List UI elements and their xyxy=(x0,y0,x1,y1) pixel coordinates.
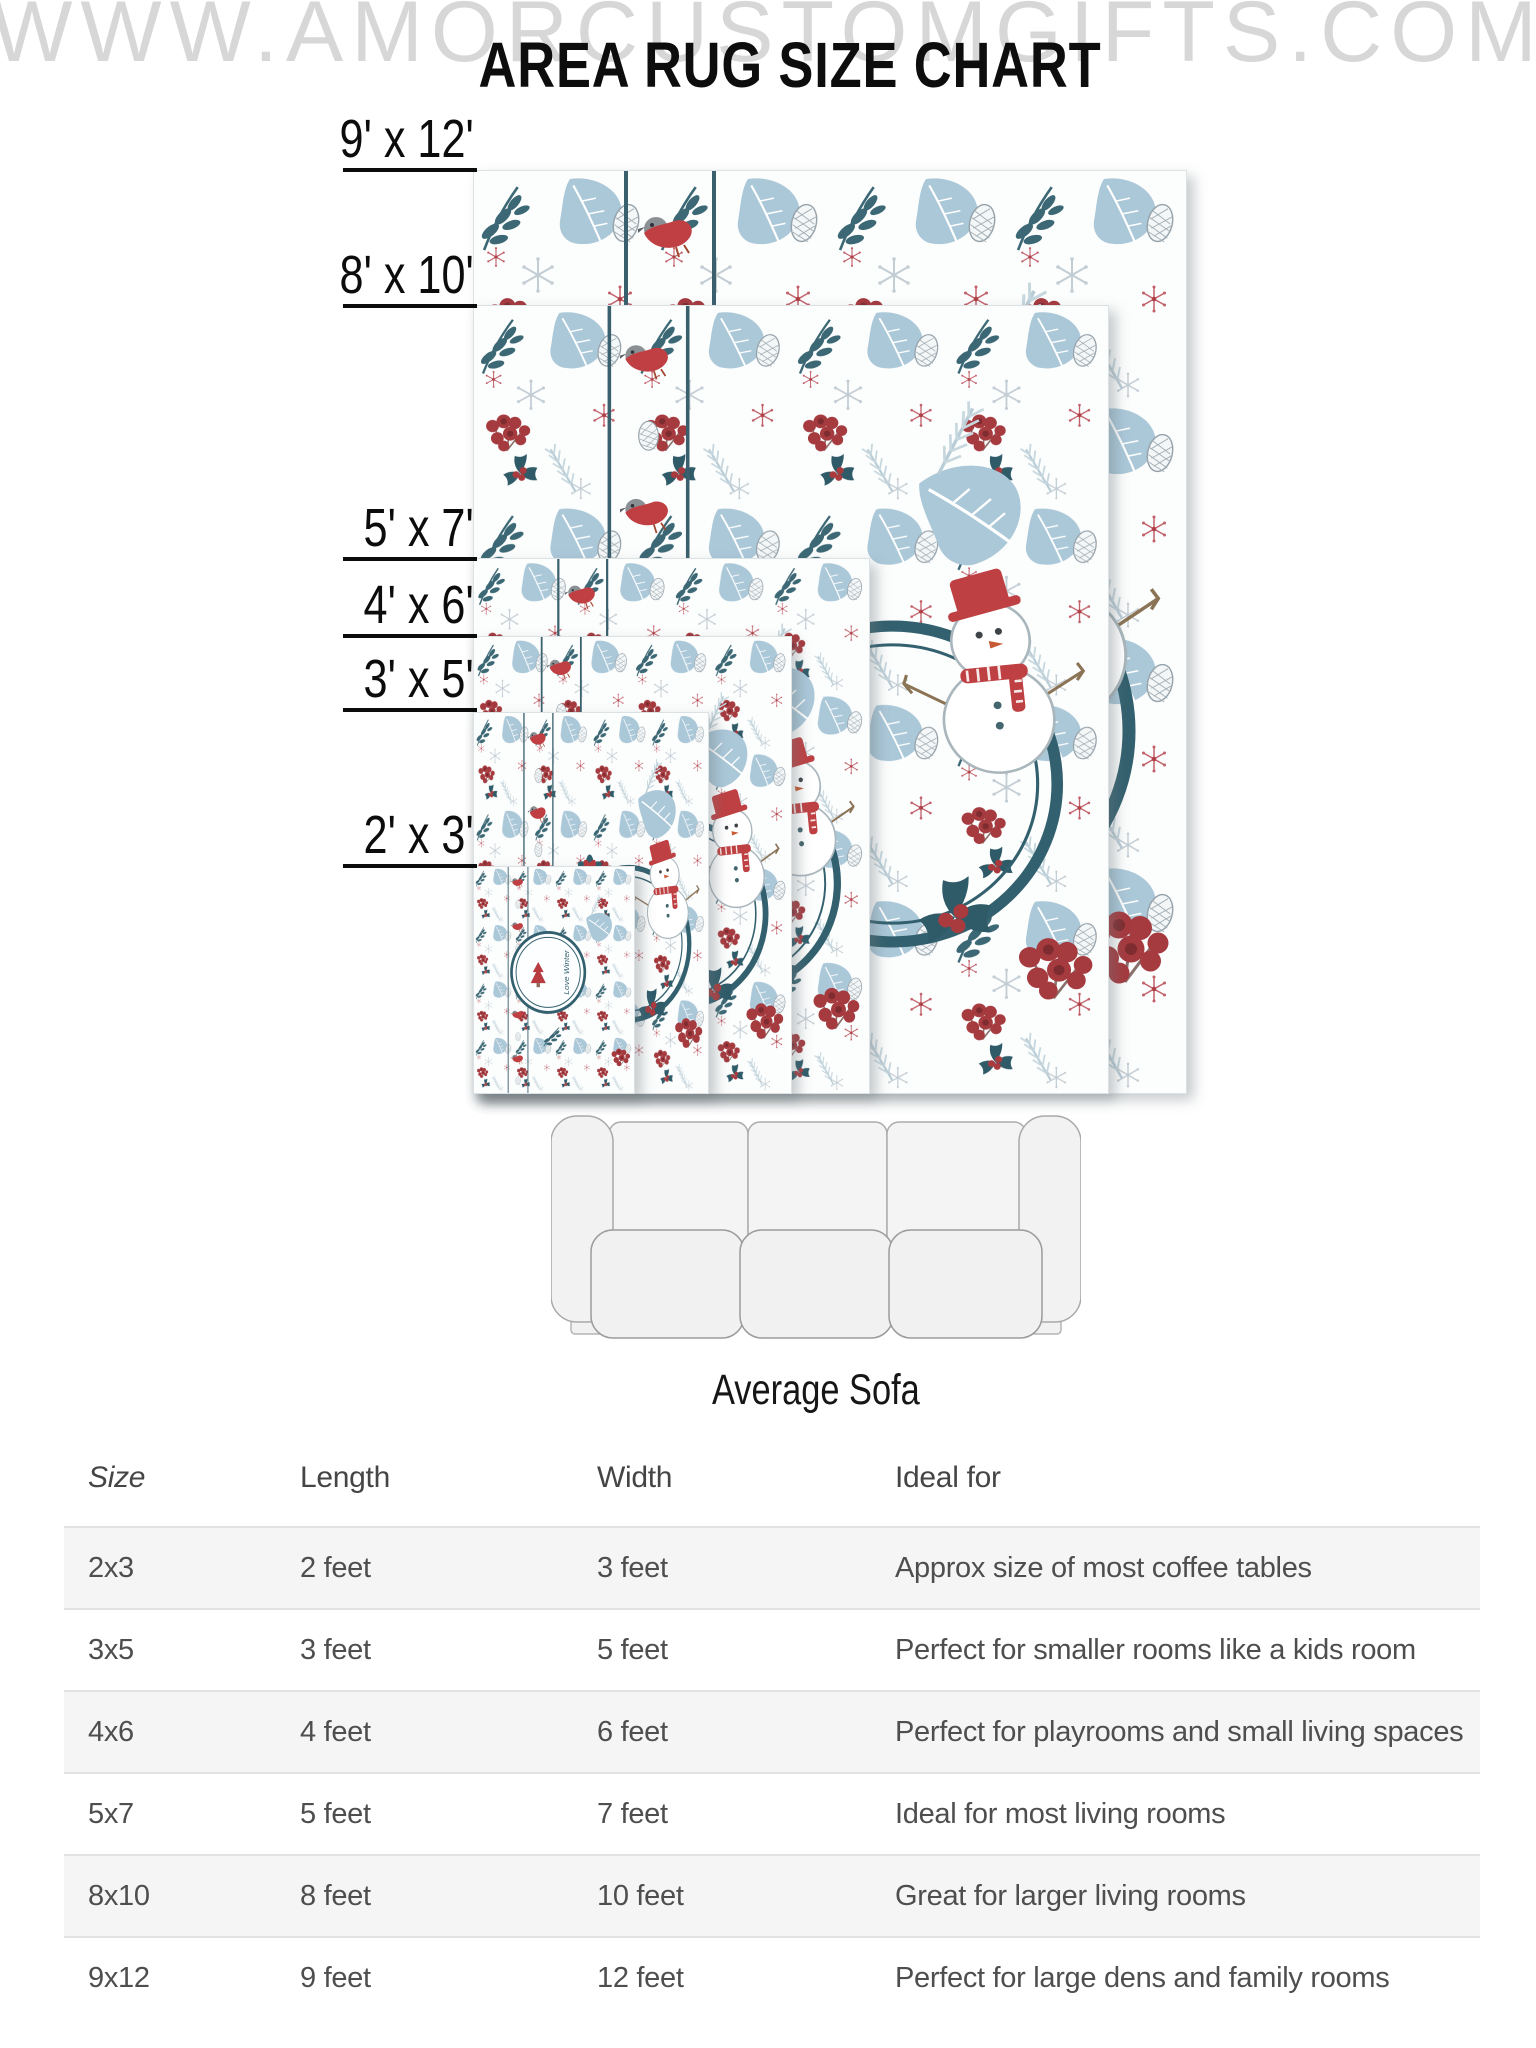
cell-length: 2 feet xyxy=(300,1548,371,1588)
cell-ideal: Perfect for playrooms and small living s… xyxy=(895,1712,1463,1752)
rug-2x3 xyxy=(473,866,635,1094)
cell-width: 10 feet xyxy=(597,1876,684,1916)
size-label-9x12: 9' x 12' xyxy=(224,110,474,168)
rug-size-chart-page: Love Winter WWW.AMORCUSTOMGIFTS.COM AREA… xyxy=(0,0,1536,2048)
row-band xyxy=(64,1856,1480,1936)
cell-width: 6 feet xyxy=(597,1712,668,1752)
size-underline-4x6 xyxy=(343,634,477,638)
sofa-seat-cushion xyxy=(889,1230,1042,1338)
size-underline-9x12 xyxy=(343,168,477,172)
cell-ideal: Perfect for smaller rooms like a kids ro… xyxy=(895,1630,1416,1670)
cell-size: 4x6 xyxy=(88,1712,134,1752)
sofa xyxy=(551,1112,1081,1340)
size-label-2x3: 2' x 3' xyxy=(224,806,474,864)
cell-ideal: Perfect for large dens and family rooms xyxy=(895,1958,1389,1998)
size-label-3x5: 3' x 5' xyxy=(224,650,474,708)
size-underline-3x5 xyxy=(343,708,477,712)
rug-print-2x3 xyxy=(474,867,634,1093)
cell-length: 9 feet xyxy=(300,1958,371,1998)
cell-ideal: Approx size of most coffee tables xyxy=(895,1548,1312,1588)
col-header-size: Size xyxy=(88,1458,145,1498)
size-underline-8x10 xyxy=(343,304,477,308)
cell-width: 7 feet xyxy=(597,1794,668,1834)
cell-length: 3 feet xyxy=(300,1630,371,1670)
row-divider xyxy=(64,1772,1480,1774)
cell-length: 4 feet xyxy=(300,1712,371,1752)
cell-width: 5 feet xyxy=(597,1630,668,1670)
cell-size: 8x10 xyxy=(88,1876,150,1916)
cell-size: 3x5 xyxy=(88,1630,134,1670)
row-divider xyxy=(64,1608,1480,1610)
cell-ideal: Great for larger living rooms xyxy=(895,1876,1246,1916)
cell-length: 5 feet xyxy=(300,1794,371,1834)
sofa-seat-cushion xyxy=(740,1230,893,1338)
cell-size: 2x3 xyxy=(88,1548,134,1588)
col-header-width: Width xyxy=(597,1458,672,1498)
sofa-seat-cushion xyxy=(591,1230,744,1338)
size-underline-5x7 xyxy=(343,557,477,561)
size-label-4x6: 4' x 6' xyxy=(224,576,474,634)
size-label-8x10: 8' x 10' xyxy=(224,246,474,304)
sofa-caption: Average Sofa xyxy=(551,1366,1081,1415)
row-divider xyxy=(64,1690,1480,1692)
cell-width: 3 feet xyxy=(597,1548,668,1588)
size-label-5x7: 5' x 7' xyxy=(224,499,474,557)
col-header-length: Length xyxy=(300,1458,390,1498)
col-header-ideal: Ideal for xyxy=(895,1458,1001,1498)
page-title: AREA RUG SIZE CHART xyxy=(479,28,1102,102)
cell-size: 9x12 xyxy=(88,1958,150,1998)
row-divider xyxy=(64,1854,1480,1856)
cell-size: 5x7 xyxy=(88,1794,134,1834)
cell-length: 8 feet xyxy=(300,1876,371,1916)
row-divider xyxy=(64,1526,1480,1528)
cell-width: 12 feet xyxy=(597,1958,684,1998)
cell-ideal: Ideal for most living rooms xyxy=(895,1794,1225,1834)
sofa-illustration xyxy=(551,1112,1081,1340)
size-underline-2x3 xyxy=(343,864,477,868)
row-divider xyxy=(64,1936,1480,1938)
